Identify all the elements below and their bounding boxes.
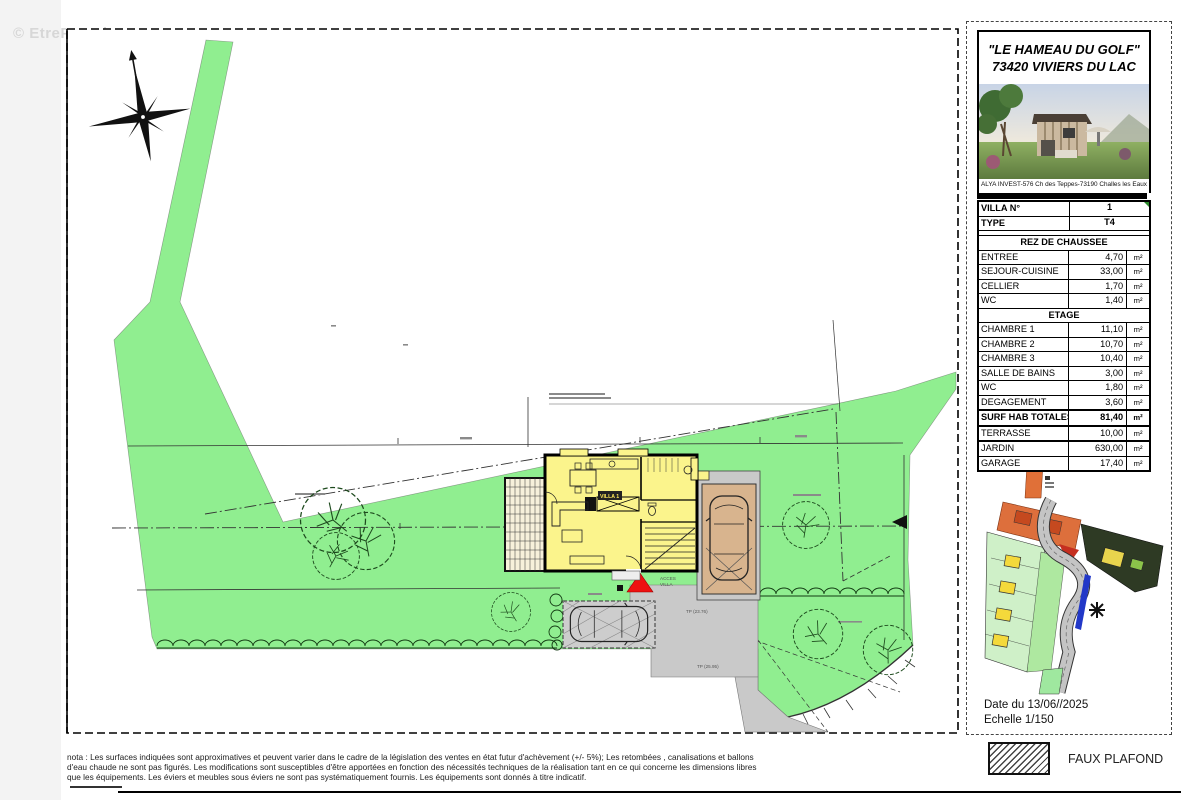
cell-corner-marker — [1144, 202, 1149, 207]
divider-bar — [977, 193, 1147, 199]
table-row: SALLE DE BAINS3,00m² — [979, 366, 1149, 381]
house-floorplan: VILLA 1 — [545, 449, 698, 580]
table-row: ENTREE4,70m² — [979, 250, 1149, 265]
parking-space — [563, 601, 655, 648]
hatch-swatch-icon — [988, 742, 1050, 775]
tp-label-2: TP (25.95) — [697, 664, 719, 669]
date-line: Date du 13/06//2025 — [984, 698, 1164, 713]
table-row: DEGAGEMENT3,60m² — [979, 395, 1149, 410]
acces-label-line1: ACCES — [660, 576, 676, 581]
table-row: GARAGE17,40m² — [979, 456, 1149, 471]
table-row: SEJOUR-CUISINE33,00m² — [979, 264, 1149, 279]
terrace — [505, 478, 545, 571]
table-row: CHAMBRE 310,40m² — [979, 351, 1149, 366]
garage-pad — [697, 471, 760, 600]
project-title: "LE HAMEAU DU GOLF" — [988, 41, 1140, 58]
project-title-block: "LE HAMEAU DU GOLF" 73420 VIVIERS DU LAC — [977, 30, 1151, 86]
table-row: CHAMBRE 111,10m² — [979, 322, 1149, 337]
table-row: CHAMBRE 210,70m² — [979, 337, 1149, 352]
tp-label-1: TP (23.76) — [686, 609, 708, 614]
plan-sheet: { "watermark": "© EtreProprio.com", "col… — [0, 0, 1181, 800]
date-scale-block: Date du 13/06//2025 Echelle 1/150 — [984, 698, 1164, 728]
acces-label-line2: VILLA — [660, 582, 673, 587]
table-row: WC1,80m² — [979, 380, 1149, 395]
photo-caption: ALYA INVEST-576 Ch des Teppes-73190 Chal… — [977, 179, 1151, 193]
table-section-header: REZ DE CHAUSSEE — [979, 235, 1149, 250]
nota-rule — [70, 786, 122, 788]
bottom-divider — [118, 791, 1181, 793]
access-marker-box — [617, 585, 623, 591]
table-section-header: ETAGE — [979, 308, 1149, 323]
villa-number-label: VILLA 1 — [600, 494, 619, 500]
faux-plafond-legend: FAUX PLAFOND — [988, 742, 1163, 775]
legend-label: FAUX PLAFOND — [1068, 752, 1163, 766]
project-city: 73420 VIVIERS DU LAC — [992, 58, 1136, 75]
table-row-total: SURF HAB TOTALES81,40m² — [979, 409, 1149, 425]
table-row: JARDIN630,00m² — [979, 440, 1149, 456]
scale-line: Echelle 1/150 — [984, 713, 1164, 728]
table-row: TERRASSE10,00m² — [979, 425, 1149, 441]
table-row: VILLA N° 1 — [979, 202, 1149, 216]
project-photo — [977, 84, 1151, 179]
surface-table: VILLA N° 1 TYPE T4 REZ DE CHAUSSEE ENTRE… — [977, 200, 1151, 472]
nota-text: nota : Les surfaces indiquées sont appro… — [67, 752, 761, 782]
table-row: CELLIER1,70m² — [979, 279, 1149, 294]
table-row: WC1,40m² — [979, 293, 1149, 308]
table-row: TYPE T4 — [979, 216, 1149, 231]
